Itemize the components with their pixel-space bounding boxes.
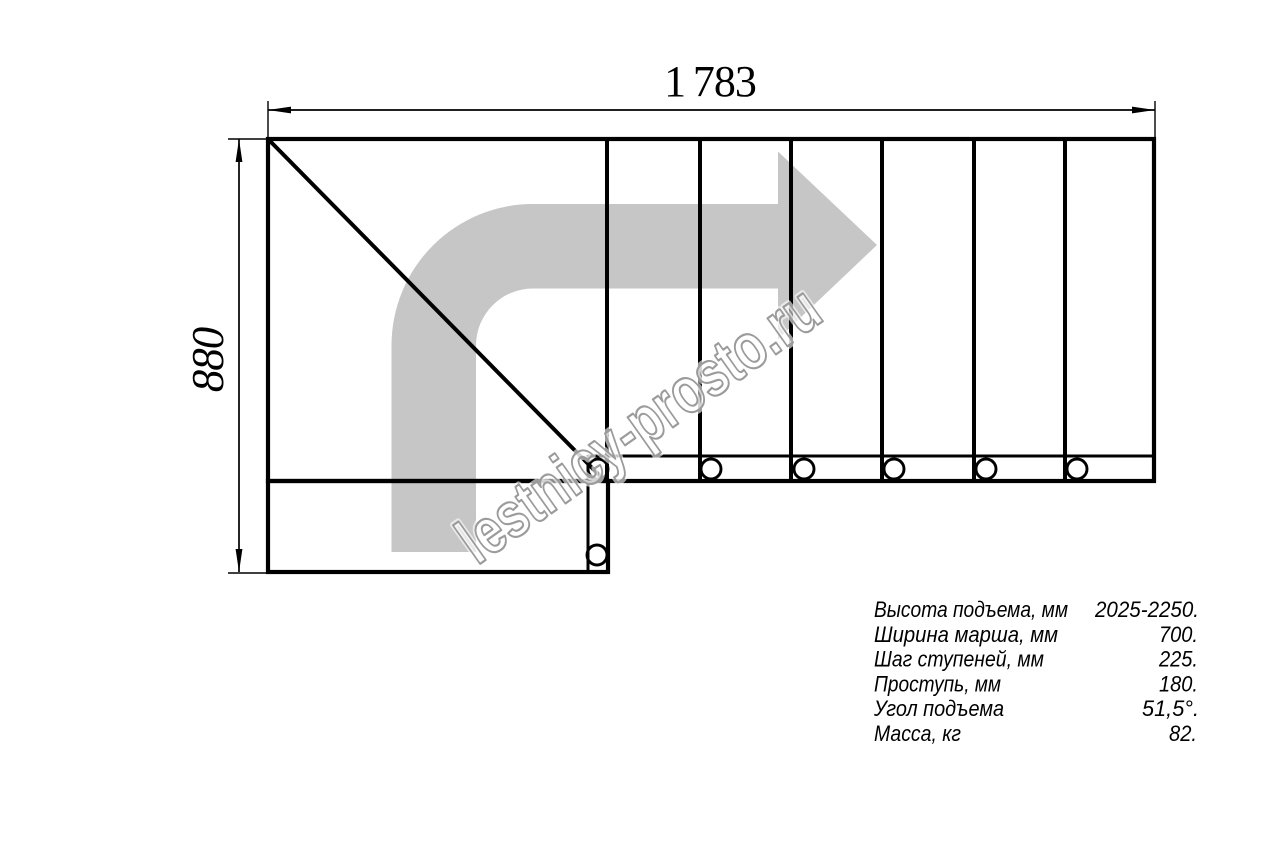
svg-text:82.: 82. — [1169, 721, 1197, 746]
svg-text:1 783: 1 783 — [664, 57, 756, 106]
svg-text:Угол подъема: Угол подъема — [873, 696, 1004, 721]
svg-text:Проступь, мм: Проступь, мм — [874, 671, 1001, 696]
svg-text:Высота подъема, мм: Высота подъема, мм — [874, 597, 1068, 622]
svg-text:225.: 225. — [1158, 647, 1198, 672]
svg-text:180.: 180. — [1159, 671, 1198, 696]
svg-text:880: 880 — [183, 327, 233, 392]
svg-text:Ширина марша, мм: Ширина марша, мм — [874, 622, 1058, 647]
svg-text:700.: 700. — [1159, 622, 1198, 647]
svg-text:Шаг ступеней, мм: Шаг ступеней, мм — [874, 647, 1044, 672]
svg-text:51,5°.: 51,5°. — [1142, 696, 1199, 721]
svg-text:2025-2250.: 2025-2250. — [1094, 597, 1199, 622]
svg-text:Масса, кг: Масса, кг — [874, 721, 961, 746]
